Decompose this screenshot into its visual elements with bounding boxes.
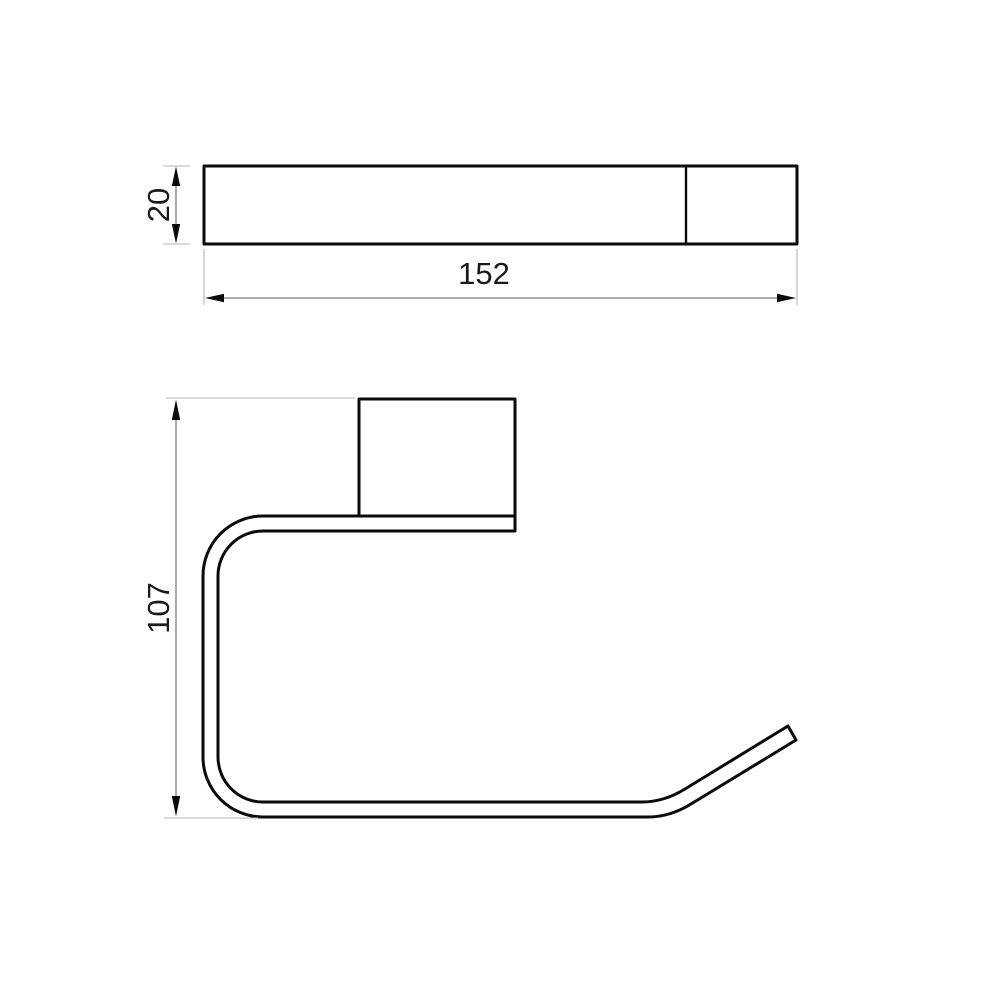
arrow-up-icon	[172, 400, 180, 421]
height-dimension-label: 107	[141, 582, 176, 634]
holder-arm-outline	[203, 516, 796, 817]
thickness-dimension-label: 20	[141, 188, 176, 222]
arrow-down-icon	[172, 224, 180, 244]
thickness-dimension: 20	[141, 166, 190, 244]
side-view: 107	[141, 398, 796, 818]
wall-mount-block-outline	[359, 399, 515, 516]
arrow-down-icon	[172, 796, 180, 817]
arrow-left-icon	[205, 294, 224, 302]
technical-drawing-canvas: 20 152 107	[0, 0, 1000, 1000]
height-dimension: 107	[141, 398, 355, 818]
arrow-up-icon	[172, 167, 180, 187]
bar-profile-outline	[204, 166, 797, 244]
length-dimension: 152	[204, 249, 797, 305]
length-dimension-label: 152	[458, 256, 510, 291]
top-view: 20 152	[141, 166, 797, 305]
arrow-right-icon	[777, 294, 796, 302]
